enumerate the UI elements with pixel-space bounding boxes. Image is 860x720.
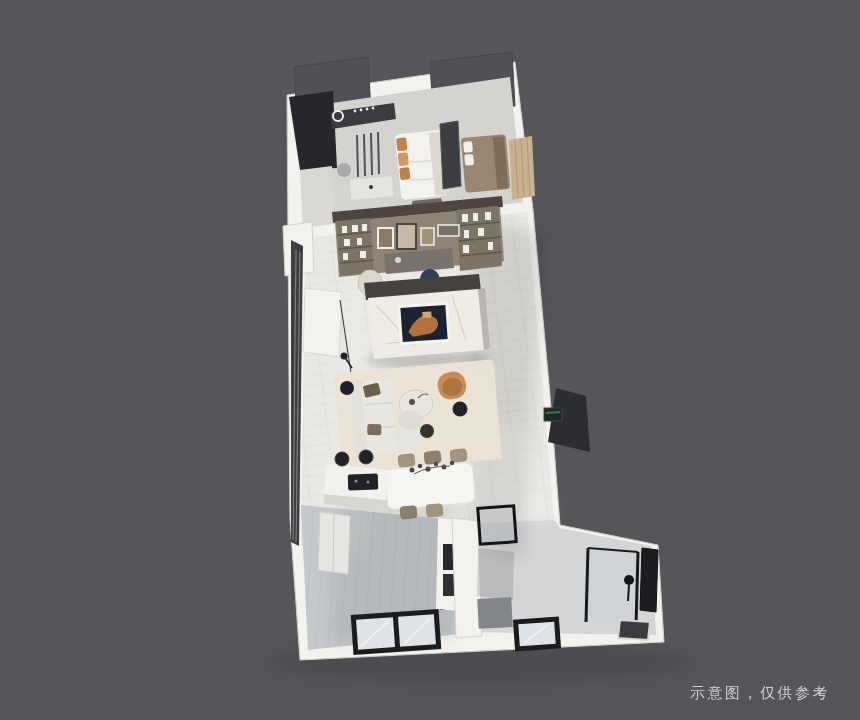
entry-hall xyxy=(477,506,516,629)
faucet xyxy=(369,185,373,189)
picture-frame xyxy=(397,224,416,249)
niche-plant xyxy=(546,412,560,413)
ottoman xyxy=(453,402,468,417)
dining-chair xyxy=(397,453,415,468)
floorplan-3d-render xyxy=(0,0,860,720)
pillow xyxy=(399,167,410,180)
bar-stool xyxy=(359,450,373,464)
wall-niche xyxy=(544,408,562,421)
picture-frame xyxy=(421,228,434,245)
balcony-window-small xyxy=(513,616,561,651)
stool xyxy=(337,163,351,177)
bookshelf-left xyxy=(336,218,374,276)
pillow xyxy=(398,152,409,166)
window-ledge-panel xyxy=(303,288,342,357)
apartment-model xyxy=(270,52,690,684)
glass-door-frame xyxy=(478,506,516,544)
mirror-panel xyxy=(640,548,658,612)
shower-fixture xyxy=(624,575,634,585)
tv-wall xyxy=(364,274,490,370)
render-viewport: 示意图，仅供参考 xyxy=(0,0,860,720)
entry-mat xyxy=(477,597,513,629)
second-bed xyxy=(461,134,511,193)
coffee-table-lower xyxy=(398,410,422,430)
floor-lamp-head xyxy=(341,353,348,360)
pillow xyxy=(396,137,407,151)
dark-side-table xyxy=(420,424,434,438)
tv-artwork xyxy=(399,303,449,343)
dining-chair xyxy=(400,505,418,519)
corridor-shadow xyxy=(477,548,514,600)
artwork-accent xyxy=(422,311,431,318)
wardrobe-tan-panel xyxy=(509,136,535,200)
sofa-chaise xyxy=(393,428,421,452)
cooktop xyxy=(348,473,379,490)
pillow xyxy=(464,154,474,166)
dining-chair xyxy=(423,450,441,465)
balcony-window-large xyxy=(351,609,442,655)
glass-frame-left xyxy=(586,548,588,622)
bar-stool xyxy=(335,452,349,466)
desk-lamp xyxy=(395,257,401,263)
picture-frame xyxy=(378,228,393,248)
watermark: 示意图，仅供参考 xyxy=(690,684,830,703)
dining-chair xyxy=(449,448,467,463)
throw-pillow xyxy=(367,424,381,435)
table-decor xyxy=(409,399,415,405)
pillow xyxy=(463,141,473,153)
shower-glass xyxy=(586,548,638,626)
picture-frame xyxy=(438,225,459,236)
dining-chair xyxy=(426,503,444,517)
glass-frame-right xyxy=(636,552,638,626)
bookshelf-right xyxy=(456,206,502,271)
side-stool xyxy=(340,381,354,395)
floor-recess xyxy=(618,620,650,640)
bedroom-divider-wardrobe xyxy=(440,121,461,189)
